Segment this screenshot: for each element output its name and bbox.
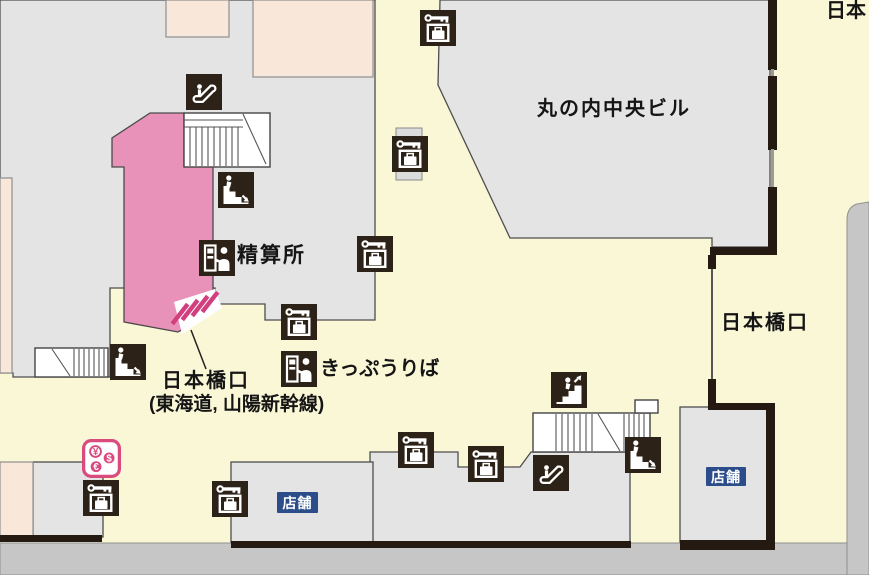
- coin-locker-icon: [398, 432, 434, 468]
- nihonbashi-exit-label: 日本橋口: [721, 313, 809, 334]
- escalator-icon: [533, 455, 569, 491]
- building-area-marunouchi: [438, 0, 770, 247]
- ticket-office-label: きっぷうりば: [320, 359, 439, 380]
- coin-locker-icon: [357, 236, 393, 272]
- gate-callout-line: [191, 330, 206, 369]
- annex-block-southwest: [0, 462, 33, 537]
- staircase-west: [35, 348, 108, 377]
- staircase-north: [184, 113, 270, 167]
- coin-locker-icon: [83, 480, 119, 516]
- shop-badge-right: 店舗: [706, 467, 746, 486]
- gate-name-line1-label: 日本橋口: [162, 371, 250, 392]
- annex-strip-west: [0, 178, 12, 373]
- fare-adjustment-office-label: 精算所: [237, 245, 306, 267]
- stairs-up-icon: [551, 372, 587, 408]
- stairs-down-icon: [625, 437, 661, 473]
- marunouchi-building-label: 丸の内中央ビル: [537, 99, 691, 120]
- fare-adjustment-machine-icon: [199, 240, 235, 276]
- coin-locker-icon: [420, 10, 456, 46]
- gate-name-line2-label: (東海道, 山陽新幹線): [149, 395, 324, 415]
- coin-locker-icon: [212, 481, 248, 517]
- annex-block-top-small: [166, 0, 229, 37]
- coin-locker-icon: [281, 304, 317, 340]
- road-east: [847, 202, 869, 575]
- coin-locker-icon: [468, 446, 504, 482]
- currency-exchange-icon: [82, 439, 121, 478]
- station-floor-map: 日本丸の内中央ビル日本橋口精算所きっぷうりば日本橋口(東海道, 山陽新幹線)店舗…: [0, 0, 869, 575]
- map-base-layer: [0, 0, 869, 575]
- annex-block-top-large: [253, 0, 373, 77]
- stairs-down-icon: [110, 344, 146, 380]
- district-top-right-label: 日本: [826, 1, 866, 22]
- coin-locker-icon: [392, 136, 428, 172]
- ticket-vending-machine-icon: [281, 351, 317, 387]
- stairs-down-icon: [218, 172, 254, 208]
- escalator-icon: [186, 74, 222, 110]
- shop-badge-left: 店舗: [277, 492, 318, 513]
